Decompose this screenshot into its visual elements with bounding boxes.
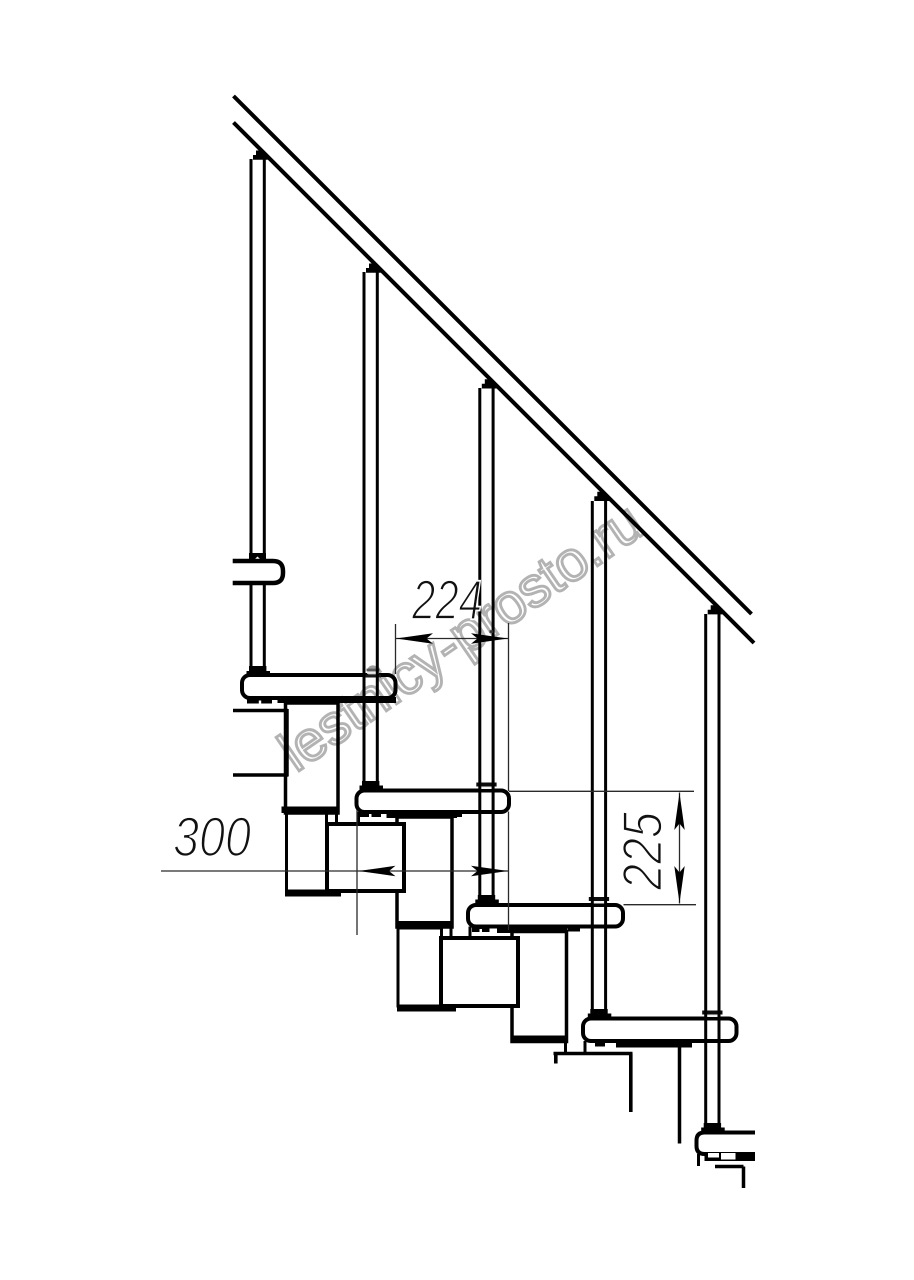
svg-text:300: 300 xyxy=(173,805,251,868)
svg-text:225: 225 xyxy=(611,811,674,891)
svg-text:224: 224 xyxy=(411,568,482,631)
